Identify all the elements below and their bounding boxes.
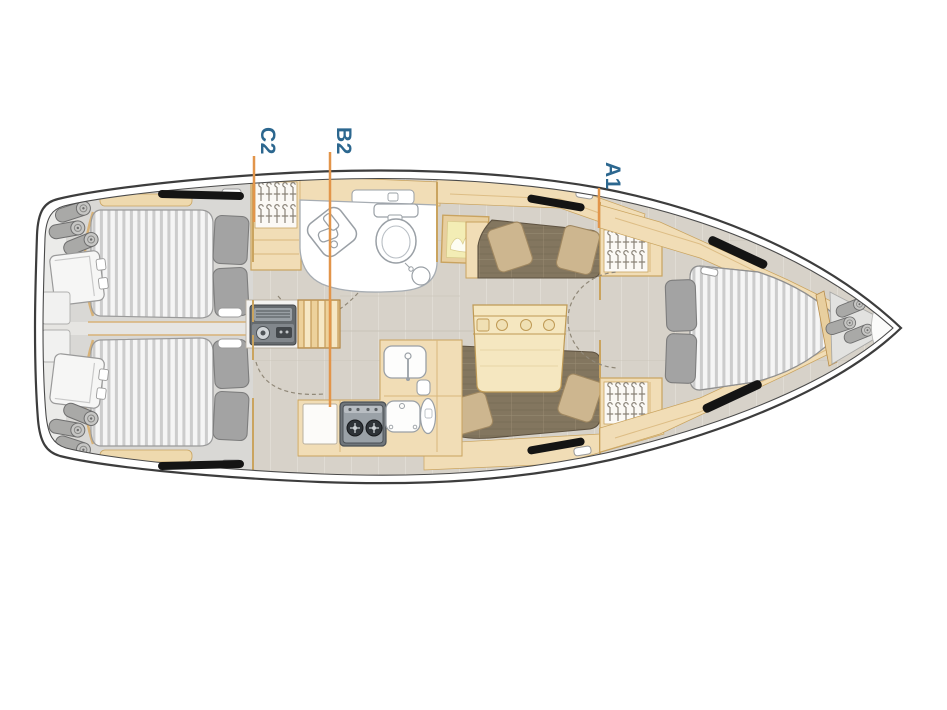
hatch [218,308,242,317]
label-a1: A1 [601,162,624,190]
salon-table [473,305,567,392]
pillow [665,279,697,331]
pillow [213,391,249,441]
label-b2: B2 [332,127,355,155]
stern-box [42,292,70,324]
double-berth [91,338,213,446]
galley-locker [303,404,337,444]
yacht-floor-plan: C2 B2 A1 [0,0,947,710]
wardrobe-midship [251,178,301,270]
pillow [213,215,249,265]
aft-cabin-divider [40,322,253,335]
pillow [665,333,697,383]
companionway-steps [298,300,340,348]
counter-detail [388,193,398,201]
engine-unit [246,300,300,348]
double-berth [91,210,213,318]
hatch [218,339,242,348]
stove [340,402,386,446]
toilet [374,204,418,263]
label-c2: C2 [256,127,279,155]
interior [40,170,910,490]
yacht-floor-plan-page: C2 B2 A1 [0,0,947,710]
